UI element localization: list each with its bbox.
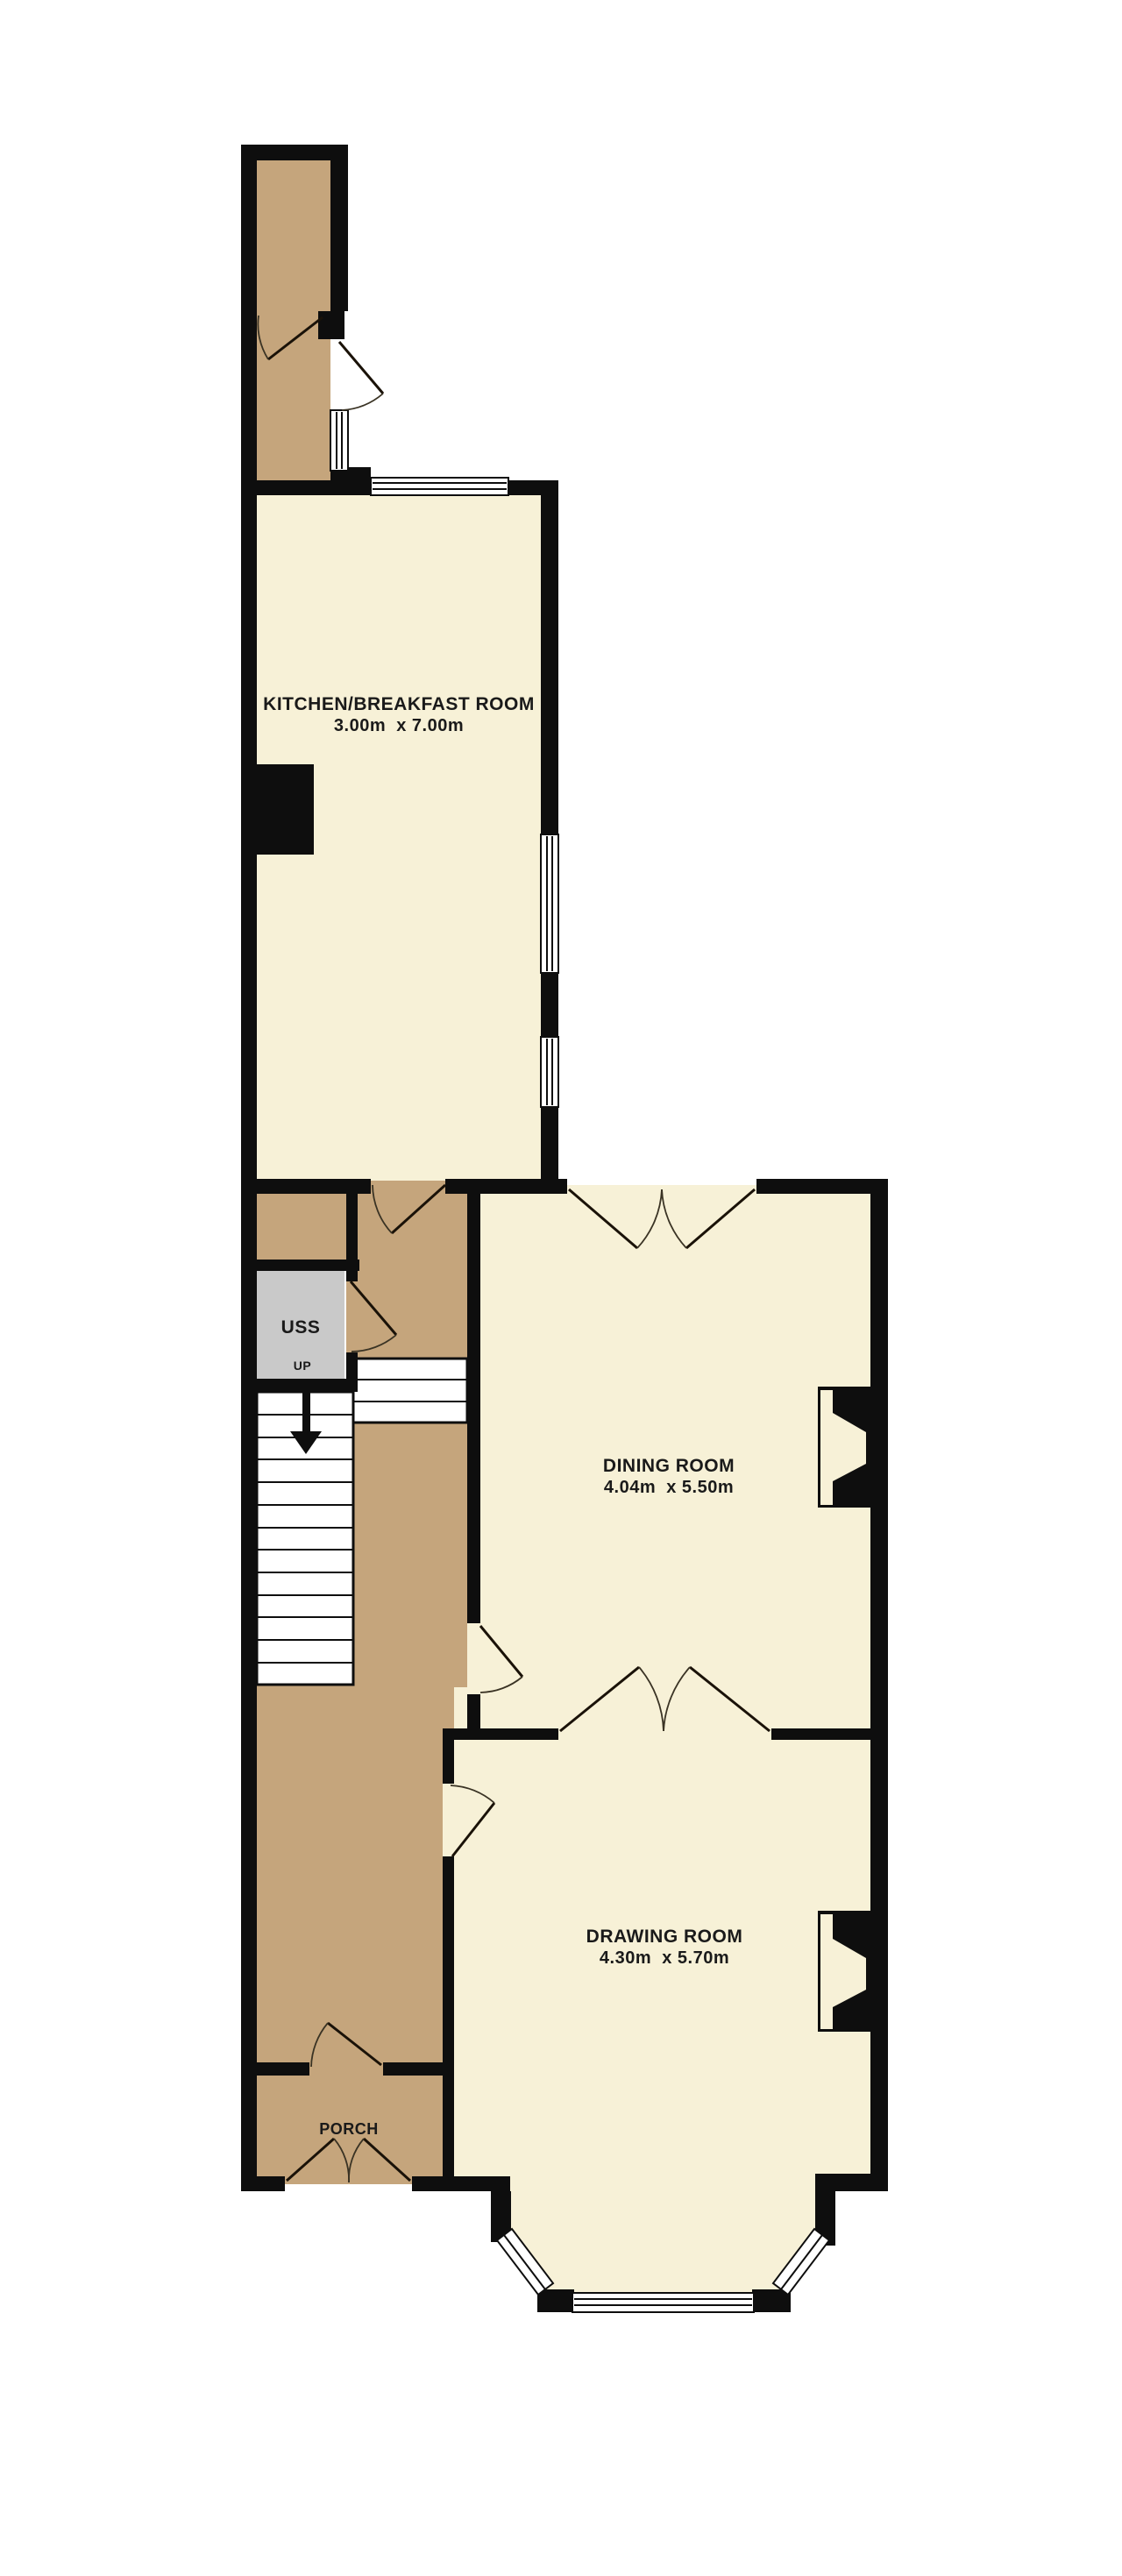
dining-door-opening — [467, 1623, 480, 1694]
porch-label: PORCH — [319, 2120, 379, 2138]
drawing-dimensions: 4.30m x 5.70m — [600, 1948, 729, 1968]
wall-dining-top-right — [756, 1179, 888, 1194]
wall-top — [241, 145, 348, 160]
dining-fireplace — [818, 1387, 885, 1508]
wall-front-right — [412, 2176, 510, 2191]
dining-corner-sliver — [454, 1687, 469, 1731]
wall-hall-dining-stub — [467, 1694, 480, 1728]
uss-label: USS — [281, 1317, 321, 1338]
porch-door-opening — [309, 2062, 383, 2076]
kitchen-top-window — [371, 478, 508, 495]
dining-label: DINING ROOM — [603, 1456, 735, 1476]
kitchen-side-window-2 — [541, 1037, 558, 1107]
wall-dining-drawing-left — [443, 1728, 558, 1740]
wall-porch-right — [443, 2076, 454, 2176]
wall-porch-top-left — [257, 2062, 309, 2076]
wall-kitchen-top-left — [241, 480, 371, 495]
up-label: UP — [294, 1359, 311, 1373]
kitchen-chimney-block — [257, 764, 314, 855]
wall-passage-right-upper — [330, 160, 348, 311]
stair-winders — [353, 1359, 467, 1423]
floorplan-page: KITCHEN/BREAKFAST ROOM 3.00m x 7.00m DIN… — [0, 0, 1122, 2576]
drawing-room-floor — [454, 1740, 870, 2301]
passage-window — [330, 410, 348, 471]
wall-uss-bottom — [257, 1379, 358, 1392]
side-entrance-door-leaf — [339, 342, 383, 394]
kitchen-door-opening — [371, 1181, 445, 1195]
store-room-floor — [257, 1194, 349, 1260]
wall-hall-dining — [467, 1194, 480, 1623]
double-doors-opening — [558, 1728, 771, 1740]
drawing-door-opening — [443, 1784, 454, 1856]
side-entrance-door-arc — [342, 394, 383, 410]
kitchen-dimensions: 3.00m x 7.00m — [334, 716, 464, 735]
wall-porch-top-right — [383, 2062, 454, 2076]
kitchen-label: KITCHEN/BREAKFAST ROOM — [263, 694, 535, 714]
wall-right-outer — [870, 1179, 888, 2191]
wall-jamb-passage-door — [318, 311, 344, 339]
wall-bay-step — [815, 2174, 888, 2191]
wall-front-left — [241, 2176, 285, 2191]
uss-door-opening — [346, 1281, 358, 1352]
drawing-fireplace — [818, 1911, 885, 2032]
wall-kitchen-bottom-right — [445, 1179, 567, 1194]
wall-hall-drawing-lower — [443, 1856, 454, 2076]
kitchen-side-window-1 — [541, 834, 558, 973]
floorplan-drawing: KITCHEN/BREAKFAST ROOM 3.00m x 7.00m DIN… — [0, 0, 1122, 2576]
drawing-label: DRAWING ROOM — [586, 1927, 743, 1947]
bay-post-bottom-left — [537, 2289, 574, 2312]
wall-hall-drawing-upper — [443, 1740, 454, 1784]
wall-left-outer — [241, 145, 257, 2191]
wall-kitchen-right-2 — [541, 973, 558, 1037]
wall-uss-top — [257, 1260, 359, 1271]
dining-dimensions: 4.04m x 5.50m — [604, 1478, 734, 1497]
bay-window-front — [572, 2293, 754, 2312]
wall-kitchen-right-1 — [541, 480, 558, 834]
